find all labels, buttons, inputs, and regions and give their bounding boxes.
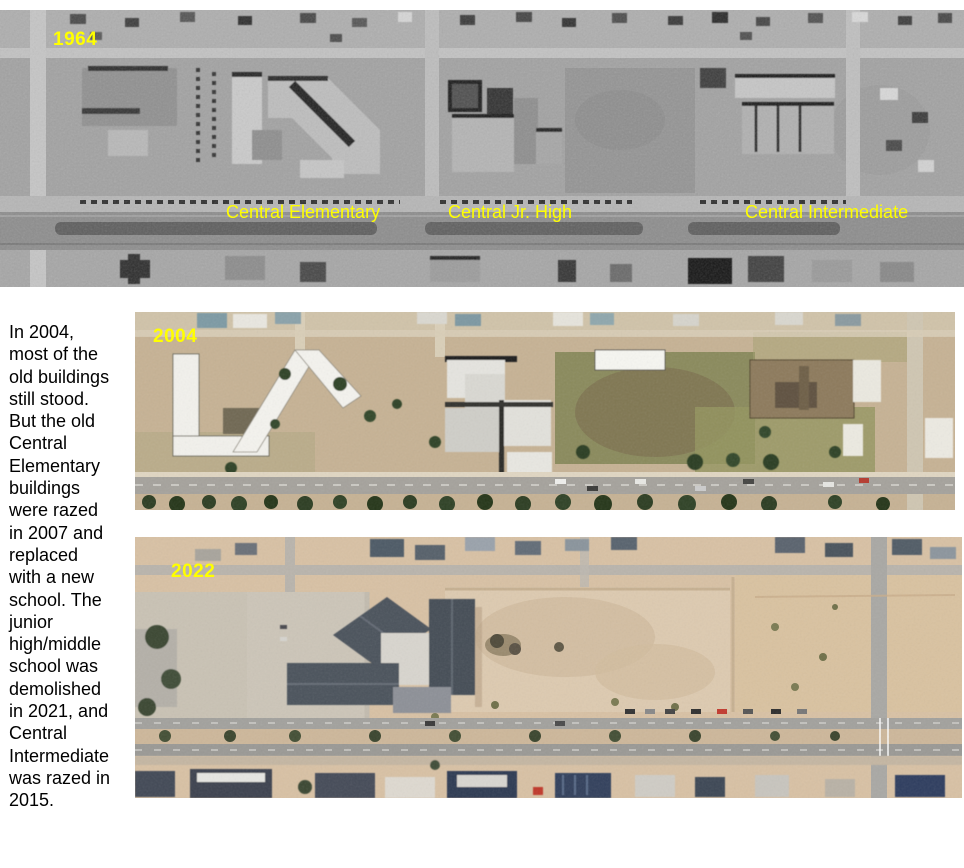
aerial-imagery-2004 [135,312,955,510]
figure-canvas: 1964 Central Elementary Central Jr. High… [0,0,964,868]
caption-text: In 2004, most of the old buildings still… [9,321,131,812]
film-grain-overlay [0,10,964,287]
label-central-jr-high: Central Jr. High [448,203,572,222]
aerial-photo-1964: 1964 Central Elementary Central Jr. High… [0,10,964,287]
year-label-1964: 1964 [53,30,97,50]
year-label-2022: 2022 [171,562,215,582]
aerial-imagery-2022 [135,537,962,798]
film-grain-overlay [135,537,962,798]
aerial-photo-2004: 2004 [135,312,955,510]
film-grain-overlay [135,312,955,510]
aerial-photo-2022: 2022 [135,537,962,798]
year-label-2004: 2004 [153,327,197,347]
label-central-intermediate: Central Intermediate [745,203,908,222]
label-central-elementary: Central Elementary [226,203,380,222]
aerial-imagery-1964 [0,10,964,287]
